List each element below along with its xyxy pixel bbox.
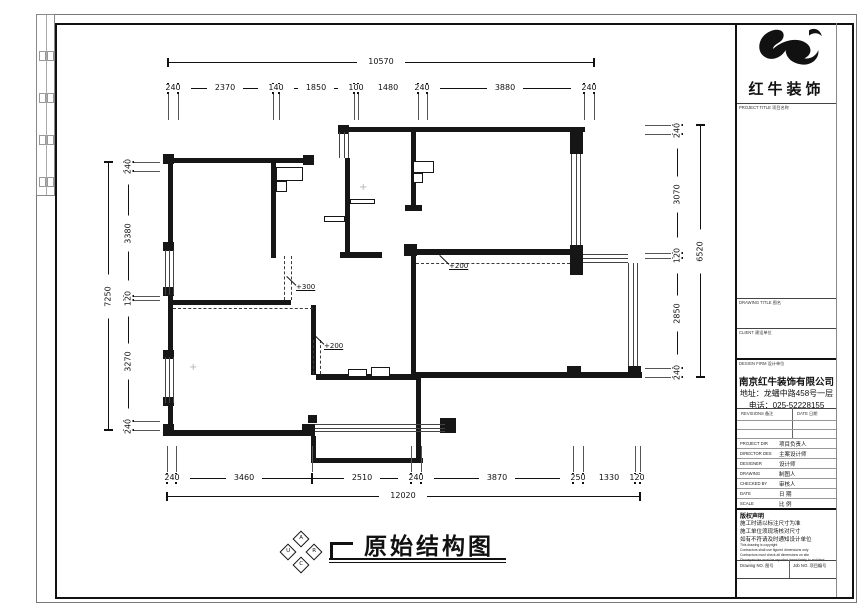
- staff-row-line: [737, 478, 836, 479]
- staff-row-zh: 设计师: [779, 460, 796, 468]
- title-bracket: [330, 542, 333, 559]
- dim-value: 240: [398, 474, 434, 482]
- dim-ext: [645, 258, 671, 259]
- diamond-logo-cell: C: [293, 557, 310, 574]
- dim-value: 120: [619, 474, 655, 482]
- dim-overall-value: 7250: [104, 275, 113, 319]
- staff-row-zh: 制图人: [779, 470, 796, 478]
- company-name: 南京红牛装饰有限公司: [737, 374, 836, 388]
- staff-row-en: DESIGNER: [740, 461, 762, 466]
- title-bracket: [330, 542, 353, 545]
- dim-value: 120: [124, 281, 133, 317]
- date-label: DATE 日期: [797, 411, 817, 416]
- dim-ext: [134, 300, 160, 301]
- staff-row-en: DIRECTOR DES: [740, 451, 772, 456]
- client-label: CLIENT 建设单位: [739, 330, 772, 335]
- dim-value: 240: [673, 113, 682, 149]
- dim-ext: [573, 446, 574, 472]
- dim-overall-value: 10570: [357, 58, 405, 66]
- design-firm-label: DESIGN FIRM 设计单位: [739, 361, 784, 366]
- title-block-margin-line: [836, 23, 837, 597]
- drawing-no-label: Drawing NO. 图号: [740, 563, 774, 569]
- dim-tick: [166, 492, 168, 501]
- dim-ext: [640, 446, 641, 472]
- dimension-layer: 2402370140185010014802403880240105702403…: [0, 0, 860, 608]
- dim-ext: [354, 94, 355, 120]
- drawing-title-label: DRAWING TITLE 图名: [739, 300, 781, 305]
- brand-name: 红牛装饰: [737, 78, 836, 99]
- note-line-en: This drawing is copyright: [740, 543, 777, 547]
- dim-ext: [427, 94, 428, 120]
- dim-tick: [696, 376, 705, 378]
- diamond-logo-icon: A U R C: [281, 532, 321, 572]
- staff-row-line: [737, 498, 836, 499]
- dim-value: 240: [124, 409, 133, 445]
- staff-row-en: DRAWING: [740, 471, 760, 476]
- dim-tick: [104, 429, 113, 431]
- dim-ext: [645, 125, 671, 126]
- dim-ext: [134, 296, 160, 297]
- dim-ext: [645, 377, 671, 378]
- note-line-zh: 如有不符请及时通知设计单位: [740, 535, 812, 543]
- dim-overall-value: 6520: [696, 230, 705, 274]
- dim-tick: [104, 161, 113, 163]
- dim-tick: [311, 473, 313, 484]
- dim-ext: [273, 94, 274, 120]
- dim-value: 240: [154, 474, 190, 482]
- note-line-zh: 施工单位须现场核对尺寸: [740, 527, 801, 535]
- title-underline: [329, 562, 506, 563]
- company-address: 地址：龙蟠中路458号一层: [737, 388, 836, 399]
- dim-ext: [134, 162, 160, 163]
- dim-ext: [176, 446, 177, 472]
- dim-ext: [167, 446, 168, 472]
- dim-ext: [421, 446, 422, 472]
- dim-ext: [635, 446, 636, 472]
- note-line-zh: 施工时请以标注尺寸为准: [740, 519, 801, 527]
- dim-value: 2510: [344, 474, 380, 482]
- staff-row-zh: 审核人: [779, 480, 796, 488]
- drawing-sheet: +300+200+200++ 2402370140185010014802403…: [0, 0, 860, 608]
- dim-ext: [584, 94, 585, 120]
- diamond-logo-cell: U: [280, 544, 297, 561]
- dim-ext: [134, 171, 160, 172]
- project-title-label: PROJECT TITLE 项目名称: [739, 105, 789, 110]
- dim-ext: [134, 421, 160, 422]
- dim-ext: [168, 94, 169, 120]
- dim-value: 2370: [207, 84, 243, 92]
- staff-row-zh: 比 例: [779, 500, 792, 508]
- dim-overall-value: 12020: [379, 492, 427, 500]
- dim-ext: [645, 368, 671, 369]
- dim-value: 240: [571, 84, 607, 92]
- bull-logo-icon: [753, 25, 823, 73]
- staff-row-zh: 日 期: [779, 490, 792, 498]
- staff-row-en: PROJECT DIR: [740, 441, 768, 446]
- dim-value: 3460: [226, 474, 262, 482]
- staff-row-line: [737, 488, 836, 489]
- staff-row-en: CHECKED BY: [740, 481, 767, 486]
- dim-value: 240: [124, 149, 133, 185]
- staff-row-zh: 主案设计师: [779, 450, 807, 458]
- dim-value: 3880: [487, 84, 523, 92]
- dim-ext: [583, 446, 584, 472]
- note-line-en: Contractors must check all dimensions on…: [740, 553, 809, 557]
- dim-tick: [639, 492, 641, 501]
- dim-ext: [312, 446, 313, 472]
- revisions-label: REVISIONS 备注: [741, 411, 773, 416]
- title-block: 红牛装饰 PROJECT TITLE 项目名称 DRAWING TITLE 图名…: [737, 23, 836, 597]
- dim-ext: [134, 430, 160, 431]
- staff-row-line: [737, 448, 836, 449]
- dim-value: 100: [338, 84, 374, 92]
- dim-ext: [594, 94, 595, 120]
- dim-tick: [167, 58, 169, 67]
- dim-ext: [418, 94, 419, 120]
- dim-value: 1480: [370, 84, 406, 92]
- note-line-en: Contractors shall use figured dimensions…: [740, 548, 808, 552]
- dim-value: 1850: [298, 84, 334, 92]
- dim-value: 120: [673, 238, 682, 274]
- dim-ext: [358, 94, 359, 120]
- dim-value: 3270: [124, 344, 133, 380]
- staff-row-line: [737, 468, 836, 469]
- dim-ext: [645, 134, 671, 135]
- dim-value: 3870: [479, 474, 515, 482]
- company-phone: 电话：025-52228155: [737, 400, 836, 411]
- diamond-logo-cell: R: [306, 544, 323, 561]
- staff-row-line: [737, 438, 836, 439]
- dim-tick: [696, 124, 705, 126]
- dim-value: 140: [258, 84, 294, 92]
- dim-value: 240: [155, 84, 191, 92]
- diamond-logo-cell: A: [293, 531, 310, 548]
- dim-value: 240: [673, 355, 682, 391]
- dim-value: 3070: [673, 177, 682, 213]
- staff-row-zh: 项目负责人: [779, 440, 807, 448]
- staff-row-en: DATE: [740, 491, 751, 496]
- dim-ext: [279, 94, 280, 120]
- title-underline: [329, 558, 506, 560]
- drawing-title: 原始结构图: [364, 527, 494, 561]
- dim-value: 3380: [124, 216, 133, 252]
- dim-ext: [645, 253, 671, 254]
- dim-tick: [593, 58, 595, 67]
- staff-row-line: [737, 458, 836, 459]
- dim-value: 2850: [673, 296, 682, 332]
- dim-ext: [411, 446, 412, 472]
- dim-value: 240: [404, 84, 440, 92]
- job-no-label: Job NO. 项目编号: [793, 563, 826, 569]
- staff-row-en: SCALE: [740, 501, 754, 506]
- dim-ext: [178, 94, 179, 120]
